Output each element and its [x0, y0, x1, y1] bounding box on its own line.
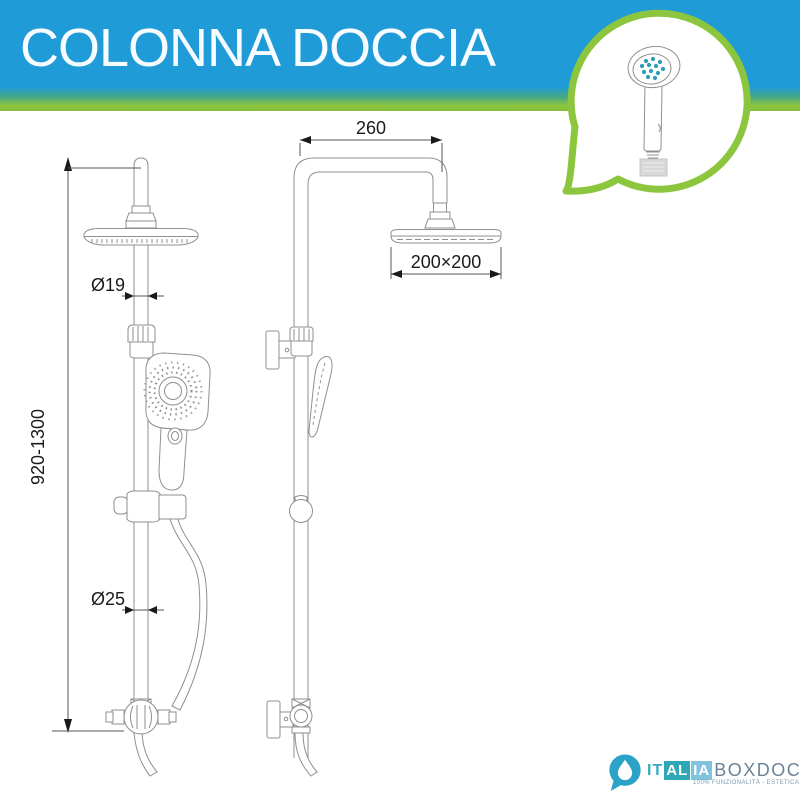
waterdrop-icon: [606, 752, 644, 794]
product-diagram-page: COLONNA DOCCIA: [0, 0, 800, 800]
brand-logo: IT AL IA BOXDOCCIA 100% FUNZIONALITÀ - E…: [606, 752, 800, 794]
height-range-label: 920-1300: [28, 409, 48, 485]
logo-part-ia: IA: [691, 761, 712, 780]
technical-drawing: 920-1300 Ø19 Ø25: [0, 111, 800, 800]
logo-part-al: AL: [664, 761, 690, 780]
front-view-drawing: [84, 158, 210, 776]
logo-part-boxdoccia: BOXDOCCIA: [714, 760, 800, 781]
logo-part-it: IT: [647, 762, 663, 780]
brand-logo-text: IT AL IA BOXDOCCIA 100% FUNZIONALITÀ - E…: [647, 761, 800, 786]
column-diameter-label: Ø25: [91, 589, 125, 609]
side-view-dimensions: 260 200×200: [300, 118, 501, 279]
pipe-diameter-label: Ø19: [91, 275, 125, 295]
arm-length-label: 260: [356, 118, 386, 138]
head-size-label: 200×200: [411, 252, 482, 272]
page-title: COLONNA DOCCIA: [0, 0, 515, 96]
side-view-drawing: [266, 158, 501, 776]
logo-tagline: 100% FUNZIONALITÀ - ESTETICA - PRATICITÀ: [693, 780, 800, 786]
